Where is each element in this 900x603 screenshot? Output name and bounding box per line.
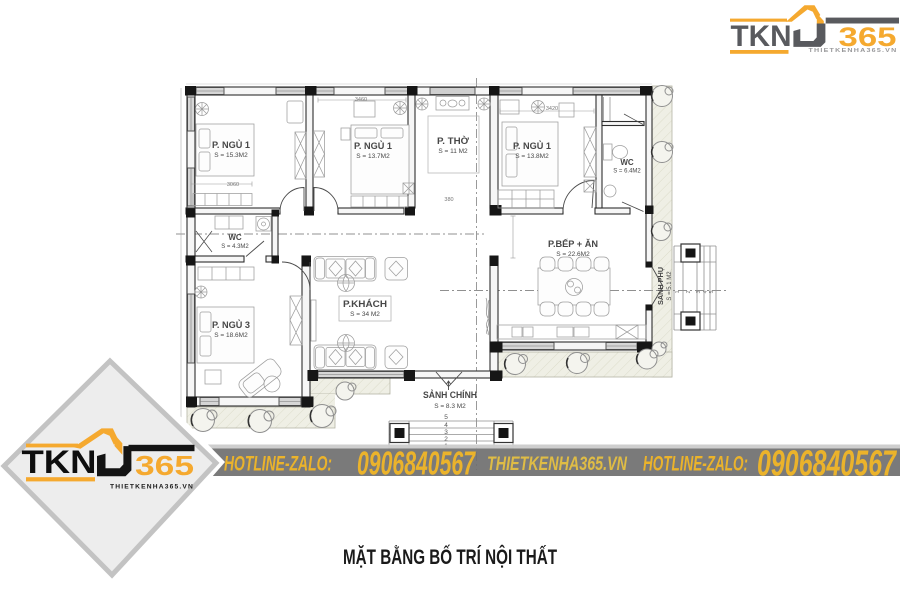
svg-text:S = 13.8M2: S = 13.8M2 <box>515 153 549 160</box>
svg-text:3: 3 <box>696 290 702 293</box>
svg-text:TKN: TKN <box>22 444 97 480</box>
svg-text:P. NGỦ 1: P. NGỦ 1 <box>354 140 392 151</box>
svg-text:WC: WC <box>620 158 634 167</box>
svg-text:S = 34 M2: S = 34 M2 <box>350 311 380 318</box>
svg-text:WC: WC <box>228 233 242 242</box>
svg-text:S = 18.6M2: S = 18.6M2 <box>214 332 248 339</box>
svg-text:5: 5 <box>709 290 715 293</box>
svg-text:3060: 3060 <box>227 182 239 188</box>
svg-text:THIETKENHA365.VN: THIETKENHA365.VN <box>809 48 898 54</box>
svg-text:S = 5.1 M2: S = 5.1 M2 <box>667 271 673 301</box>
svg-text:P.BẾP + ĂN: P.BẾP + ĂN <box>548 239 598 250</box>
svg-text:P. NGỦ 3: P. NGỦ 3 <box>212 319 250 330</box>
svg-text:SẢNH CHÍNH: SẢNH CHÍNH <box>423 389 477 400</box>
svg-text:S = 8.3 M2: S = 8.3 M2 <box>434 403 466 410</box>
svg-text:HOTLINE-ZALO:: HOTLINE-ZALO: <box>224 453 332 476</box>
svg-text:3460: 3460 <box>355 97 367 103</box>
svg-text:HOTLINE-ZALO:: HOTLINE-ZALO: <box>643 453 748 476</box>
svg-text:S = 6.4M2: S = 6.4M2 <box>613 169 641 175</box>
svg-text:2: 2 <box>444 436 448 443</box>
svg-text:S = 4.3M2: S = 4.3M2 <box>221 244 249 250</box>
svg-text:5: 5 <box>444 414 448 421</box>
svg-text:2: 2 <box>686 290 692 293</box>
svg-text:0906840567: 0906840567 <box>757 443 897 484</box>
svg-text:1: 1 <box>675 290 681 293</box>
svg-text:S = 13.7M2: S = 13.7M2 <box>356 153 390 160</box>
svg-text:THIETKENHA365.VN: THIETKENHA365.VN <box>487 453 628 475</box>
svg-text:S = 15.3M2: S = 15.3M2 <box>214 152 248 159</box>
svg-text:3: 3 <box>444 429 448 436</box>
svg-text:P.KHÁCH: P.KHÁCH <box>343 299 387 310</box>
svg-text:TKN: TKN <box>731 20 792 53</box>
svg-text:P. NGỦ 1: P. NGỦ 1 <box>513 140 551 151</box>
svg-text:4: 4 <box>444 422 448 429</box>
svg-text:0906840567: 0906840567 <box>357 445 476 482</box>
svg-text:380: 380 <box>444 197 453 203</box>
svg-text:3420: 3420 <box>546 106 558 112</box>
svg-text:P. THỜ: P. THỜ <box>437 135 469 146</box>
svg-text:MẶT BẰNG BỐ TRÍ NỘI THẤT: MẶT BẰNG BỐ TRÍ NỘI THẤT <box>343 545 557 569</box>
svg-text:SẢNH PHỤ: SẢNH PHỤ <box>656 267 665 305</box>
svg-text:365: 365 <box>135 450 194 481</box>
svg-text:S = 11 M2: S = 11 M2 <box>438 148 468 155</box>
svg-text:S = 22.6M2: S = 22.6M2 <box>556 251 590 258</box>
svg-text:THIETKENHA365.VN: THIETKENHA365.VN <box>110 483 194 490</box>
svg-text:P. NGỦ 1: P. NGỦ 1 <box>212 139 250 150</box>
